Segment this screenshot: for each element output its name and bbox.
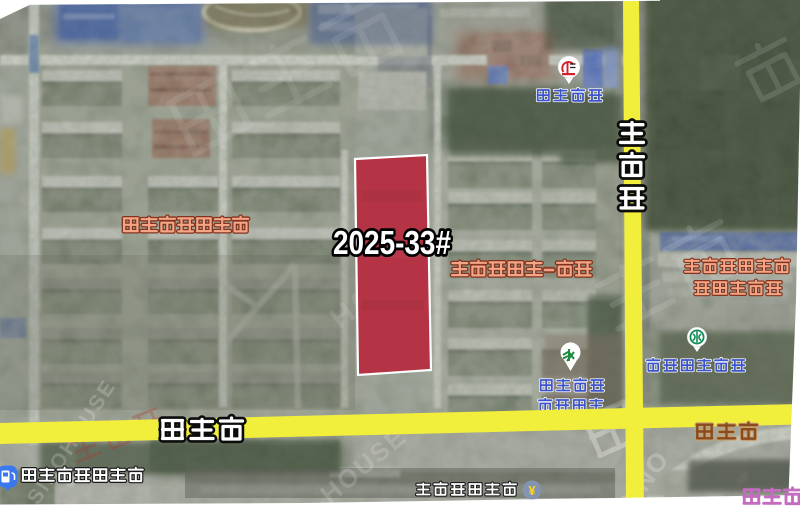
svg-text:2025-33#: 2025-33# (333, 224, 451, 261)
svg-text:¥: ¥ (528, 483, 536, 498)
